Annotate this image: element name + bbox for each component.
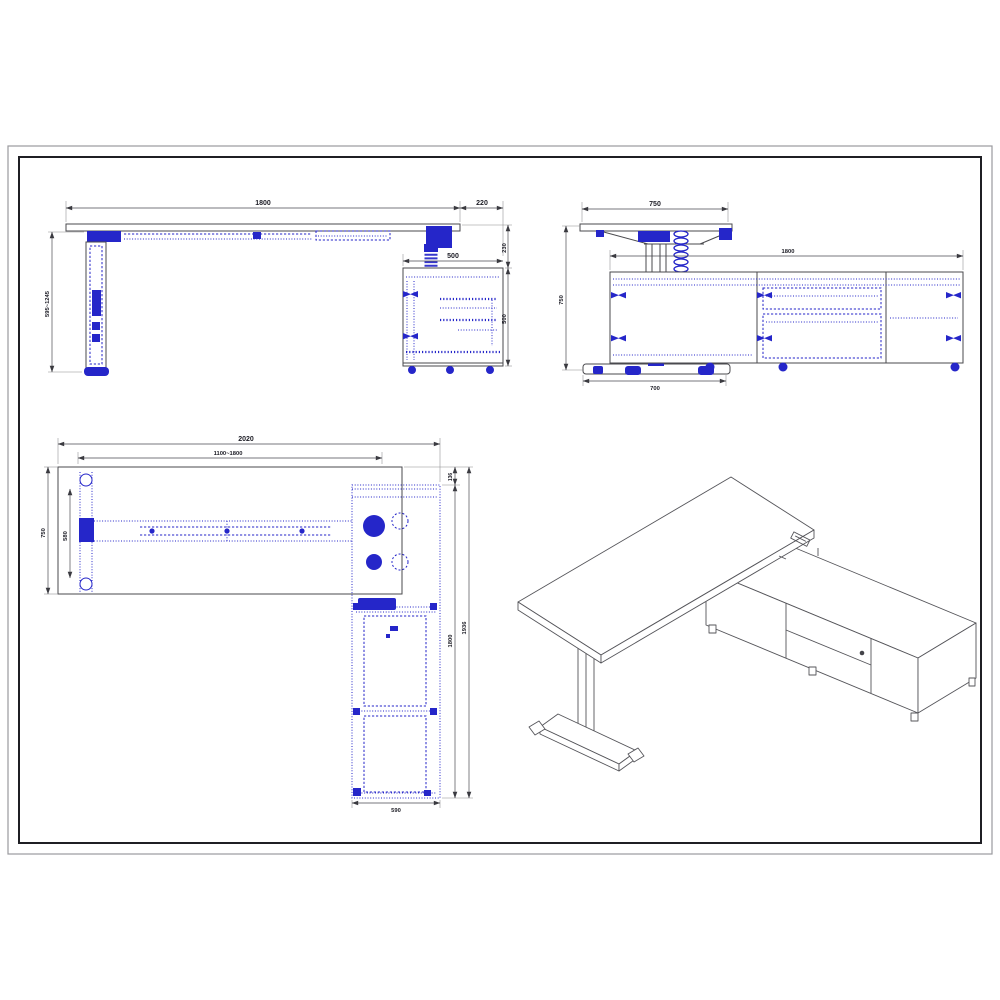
cabinet-foot: [779, 363, 788, 372]
cabinet-foot: [951, 363, 960, 372]
dim-plan-foot-span: 580: [63, 531, 69, 541]
desk-leg-front: [84, 242, 109, 376]
credenza-foot: [911, 713, 918, 721]
desk-top-side: [580, 224, 732, 231]
dim-front-cabinet-height: 500: [502, 314, 508, 324]
desk-top-front: [66, 224, 460, 231]
dim-front-gap: 230: [502, 243, 508, 253]
side-elevation-view: 750: [559, 201, 963, 392]
credenza-foot: [809, 667, 816, 675]
dim-front-cabinet-width: 500: [447, 253, 459, 260]
cabinet-foot: [408, 366, 416, 374]
dim-side-cabinet-length: 1800: [782, 249, 795, 255]
dim-plan-overall-depth: 1936: [462, 621, 468, 635]
cabinet-side: [610, 272, 963, 372]
credenza-foot: [969, 678, 975, 686]
dim-front-desk-width: 1800: [255, 200, 271, 207]
plan-view: 2020 1100~1800 750 580: [41, 436, 473, 814]
dim-front-height-range: 595~1245: [45, 290, 51, 317]
cabinet-foot: [706, 363, 715, 372]
front-elevation-view: 1800 220: [45, 200, 512, 376]
dim-plan-corner-offset: 136: [448, 473, 454, 482]
technical-drawing-canvas: 1800 220: [0, 0, 1000, 1000]
dim-side-foot-length: 700: [650, 386, 660, 392]
dim-plan-desk-depth: 750: [41, 528, 47, 538]
dim-plan-overall-length: 2020: [238, 436, 254, 443]
cabinet-foot: [486, 366, 494, 374]
leg-foot: [84, 367, 109, 376]
dim-plan-cabinet-run: 1800: [448, 635, 454, 648]
dim-plan-cabinet-width: 590: [391, 808, 401, 814]
cabinet-front: [403, 268, 503, 374]
control-box: [358, 598, 396, 610]
dim-side-desk-depth: 750: [649, 201, 661, 208]
cabinet-foot: [446, 366, 454, 374]
dim-side-desk-height: 750: [559, 295, 565, 305]
cabinet-door-plan: [364, 716, 426, 792]
dim-plan-adjustable-range: 1100~1800: [214, 451, 243, 457]
lift-motor: [363, 515, 385, 537]
dim-front-overhang: 220: [476, 200, 488, 207]
credenza-foot: [709, 625, 716, 633]
keyhole: [860, 651, 865, 656]
isometric-view: [518, 477, 976, 771]
desk-top-plan: [58, 467, 402, 594]
drawing-page: 1800 220: [0, 0, 1000, 1000]
